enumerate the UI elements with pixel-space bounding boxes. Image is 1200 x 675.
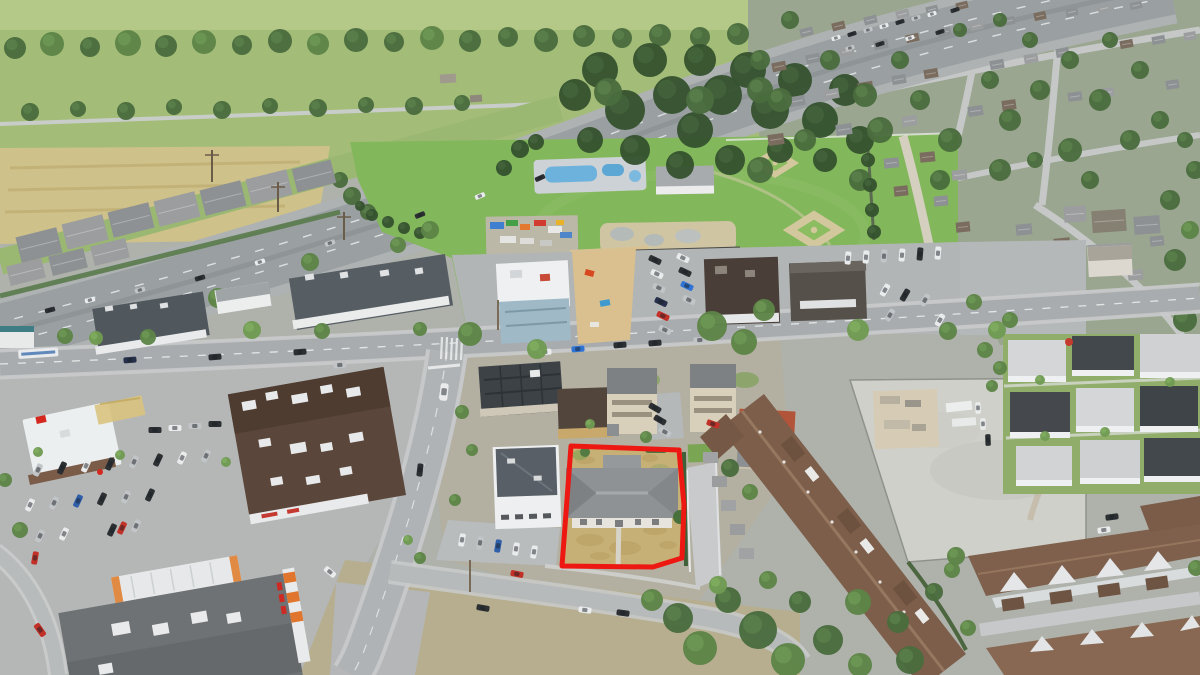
rect — [0, 0, 765, 30]
rect — [1080, 478, 1140, 484]
rv — [952, 417, 976, 427]
circ — [854, 550, 857, 553]
rect — [596, 519, 602, 525]
circ — [806, 490, 809, 493]
rect — [607, 424, 619, 436]
rect — [515, 514, 523, 519]
ell — [659, 541, 677, 549]
rect — [1008, 340, 1066, 382]
rect — [590, 322, 599, 327]
modern-condos — [1003, 334, 1200, 494]
rect — [580, 519, 587, 525]
red-sign — [97, 469, 103, 475]
balcony-unit — [730, 524, 745, 535]
rect — [635, 519, 641, 525]
rect — [520, 238, 534, 244]
rect — [415, 267, 424, 274]
rect — [612, 400, 652, 405]
rect — [1140, 386, 1198, 432]
rect — [540, 274, 550, 282]
rect — [612, 412, 652, 417]
crosswalk-bar — [456, 338, 457, 360]
rect — [652, 519, 659, 525]
rect — [715, 266, 727, 274]
rect — [500, 236, 516, 243]
pool — [545, 165, 598, 183]
rect — [1010, 392, 1070, 438]
ell — [610, 227, 634, 241]
rect — [534, 475, 542, 480]
circ — [878, 580, 881, 583]
rect — [615, 520, 623, 527]
circ — [830, 520, 833, 523]
rect — [1088, 245, 1133, 261]
rect — [1144, 438, 1200, 482]
rect — [694, 396, 732, 401]
ell — [576, 534, 604, 546]
rect — [1072, 370, 1134, 376]
ell — [675, 229, 701, 243]
rect — [530, 370, 540, 378]
balcony-unit — [703, 452, 718, 463]
crosswalk-bar — [441, 337, 442, 359]
pool — [602, 164, 624, 176]
red-umbrella — [1065, 338, 1073, 346]
rect — [548, 226, 562, 233]
rect — [490, 222, 504, 229]
rect — [1140, 334, 1200, 378]
rect — [607, 368, 657, 394]
rect — [0, 326, 34, 332]
rect — [501, 515, 509, 520]
circ — [811, 227, 818, 234]
rect — [283, 571, 297, 583]
rect — [529, 514, 537, 519]
rect — [1010, 432, 1070, 438]
rect — [520, 224, 530, 230]
rect — [543, 513, 551, 518]
circ — [758, 430, 761, 433]
pool — [629, 170, 641, 182]
ell — [644, 234, 664, 246]
balcony-unit — [721, 500, 736, 511]
balcony-unit — [712, 476, 727, 487]
rect — [558, 427, 612, 439]
rect — [534, 220, 546, 226]
ell — [609, 541, 641, 555]
construction-site — [572, 248, 636, 344]
aerial-photo — [0, 0, 1200, 675]
rect — [690, 364, 736, 388]
rect — [745, 270, 755, 277]
rect — [880, 396, 900, 404]
rect — [510, 270, 522, 279]
rect — [1140, 426, 1198, 432]
aerial-photo-canvas — [0, 0, 1200, 675]
circ — [782, 460, 785, 463]
rect — [340, 271, 349, 278]
rect — [1144, 476, 1200, 482]
rect — [694, 408, 732, 413]
rect — [1016, 480, 1072, 486]
rect — [1076, 388, 1134, 432]
rect — [540, 240, 552, 246]
rect — [656, 185, 714, 194]
rect — [884, 420, 910, 429]
rect — [556, 220, 564, 225]
rect — [286, 591, 300, 603]
ell — [590, 552, 610, 560]
crosswalk-bar — [446, 337, 447, 359]
balcony-unit — [739, 548, 754, 559]
rect — [290, 611, 304, 623]
ell — [642, 454, 658, 462]
rect — [1080, 440, 1140, 484]
vet-clinic-building — [493, 445, 562, 529]
rect — [507, 458, 515, 463]
modern-building-glass — [499, 298, 571, 344]
rect — [905, 400, 921, 407]
farm-shed — [440, 73, 457, 83]
rect — [560, 232, 572, 238]
farm-shed — [470, 95, 482, 103]
crosswalk-bar — [451, 338, 452, 360]
red-property-lot — [562, 446, 687, 567]
rect — [912, 424, 926, 431]
rect — [506, 220, 518, 226]
